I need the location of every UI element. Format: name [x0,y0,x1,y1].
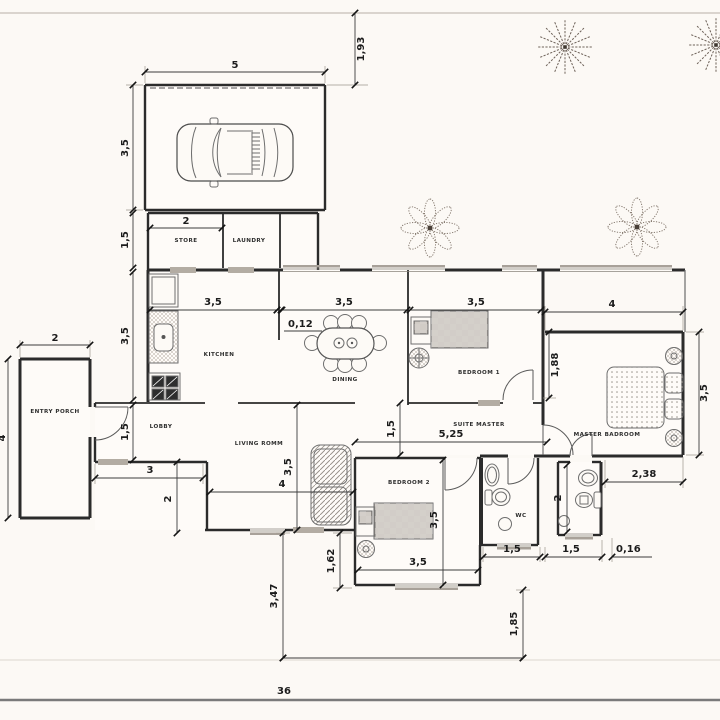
kitchen-sink-icon [149,311,178,363]
dim-bath2-height: 2 [553,494,564,501]
dim-bedroom1-side: 1,88 [550,353,561,378]
dim-site-width: 36 [277,686,291,697]
dim-store-width: 2 [183,216,190,227]
shrub-icon [538,20,592,74]
dim-garage-width: 5 [232,60,239,71]
shrub-icon [689,18,720,72]
dim-corridor-height: 1,5 [386,420,397,438]
room-label-living-room: LIVING ROMM [235,441,283,447]
dim-right-wall: 0,16 [616,544,641,555]
room-label-wc: WC [515,513,526,519]
dim-bedroom2-extension: 1,62 [326,549,337,574]
dim-master-width: 4 [609,299,616,310]
threshold-laundry [228,267,254,273]
dim-lobby-height: 1,5 [120,423,131,441]
room-label-bedroom1: BEDROOM 1 [458,370,500,376]
dim-living-height: 3,5 [283,458,294,476]
dim-dining-width: 3,5 [335,297,353,308]
dim-step-height: 2 [163,495,174,502]
sofa-icon [311,445,351,525]
threshold-store [170,267,196,273]
floor-plan-drawing: 5 3,5 1,93 1,5 2 3,5 3,5 3,5 0,12 4 1,88… [0,0,720,720]
room-label-lobby: LOBBY [150,424,173,430]
dim-bedroom2-height: 3,5 [429,511,440,529]
room-label-kitchen: KITCHEN [204,352,235,358]
dim-site-right: 1,85 [509,612,520,637]
stove-icon [149,373,180,400]
window-terrace [560,265,672,272]
threshold-corridor [478,400,500,406]
dim-wc-width: 1,5 [503,544,521,555]
dim-master-height: 3,5 [699,384,710,402]
dim-site-left: 3,47 [269,584,280,609]
dim-living-width: 4 [279,479,286,490]
flower-icon [608,198,666,256]
dim-step-width: 3 [147,465,154,476]
dim-porch-height: 4 [0,434,8,441]
threshold-lobby [98,459,128,465]
room-label-suite-master: SUITE MASTER [453,422,505,428]
room-label-laundry: LAUNDRY [233,238,266,244]
dim-porch-width: 2 [52,333,59,344]
dim-garage-height: 3,5 [120,139,131,157]
room-label-bedroom2: BEDROOM 2 [388,480,430,486]
plants [401,18,720,257]
room-label-store: STORE [175,238,198,244]
dim-bedroom1-width: 3,5 [467,297,485,308]
dim-bedroom2-width: 3,5 [409,557,427,568]
dim-master-offset: 2,38 [632,469,657,480]
dim-kitchen-height: 3,5 [120,327,131,345]
floor-plan-page: 5 3,5 1,93 1,5 2 3,5 3,5 3,5 0,12 4 1,88… [0,0,720,720]
dim-top-setback: 1,93 [356,37,367,62]
dim-bath2-width: 1,5 [562,544,580,555]
room-label-master-bedroom: MASTER BADROOM [574,432,641,438]
dim-corridor-width: 5,25 [439,429,464,440]
dim-wall-thickness: 0,12 [288,319,313,330]
room-label-entry-porch: ENTRY PORCH [30,409,79,415]
flower-icon [401,199,459,257]
dim-store-height: 1,5 [120,231,131,249]
room-label-dining: DINING [332,377,357,383]
car-icon [177,118,293,187]
kitchen-counter-icon [149,274,178,307]
dim-kitchen-width: 3,5 [204,297,222,308]
